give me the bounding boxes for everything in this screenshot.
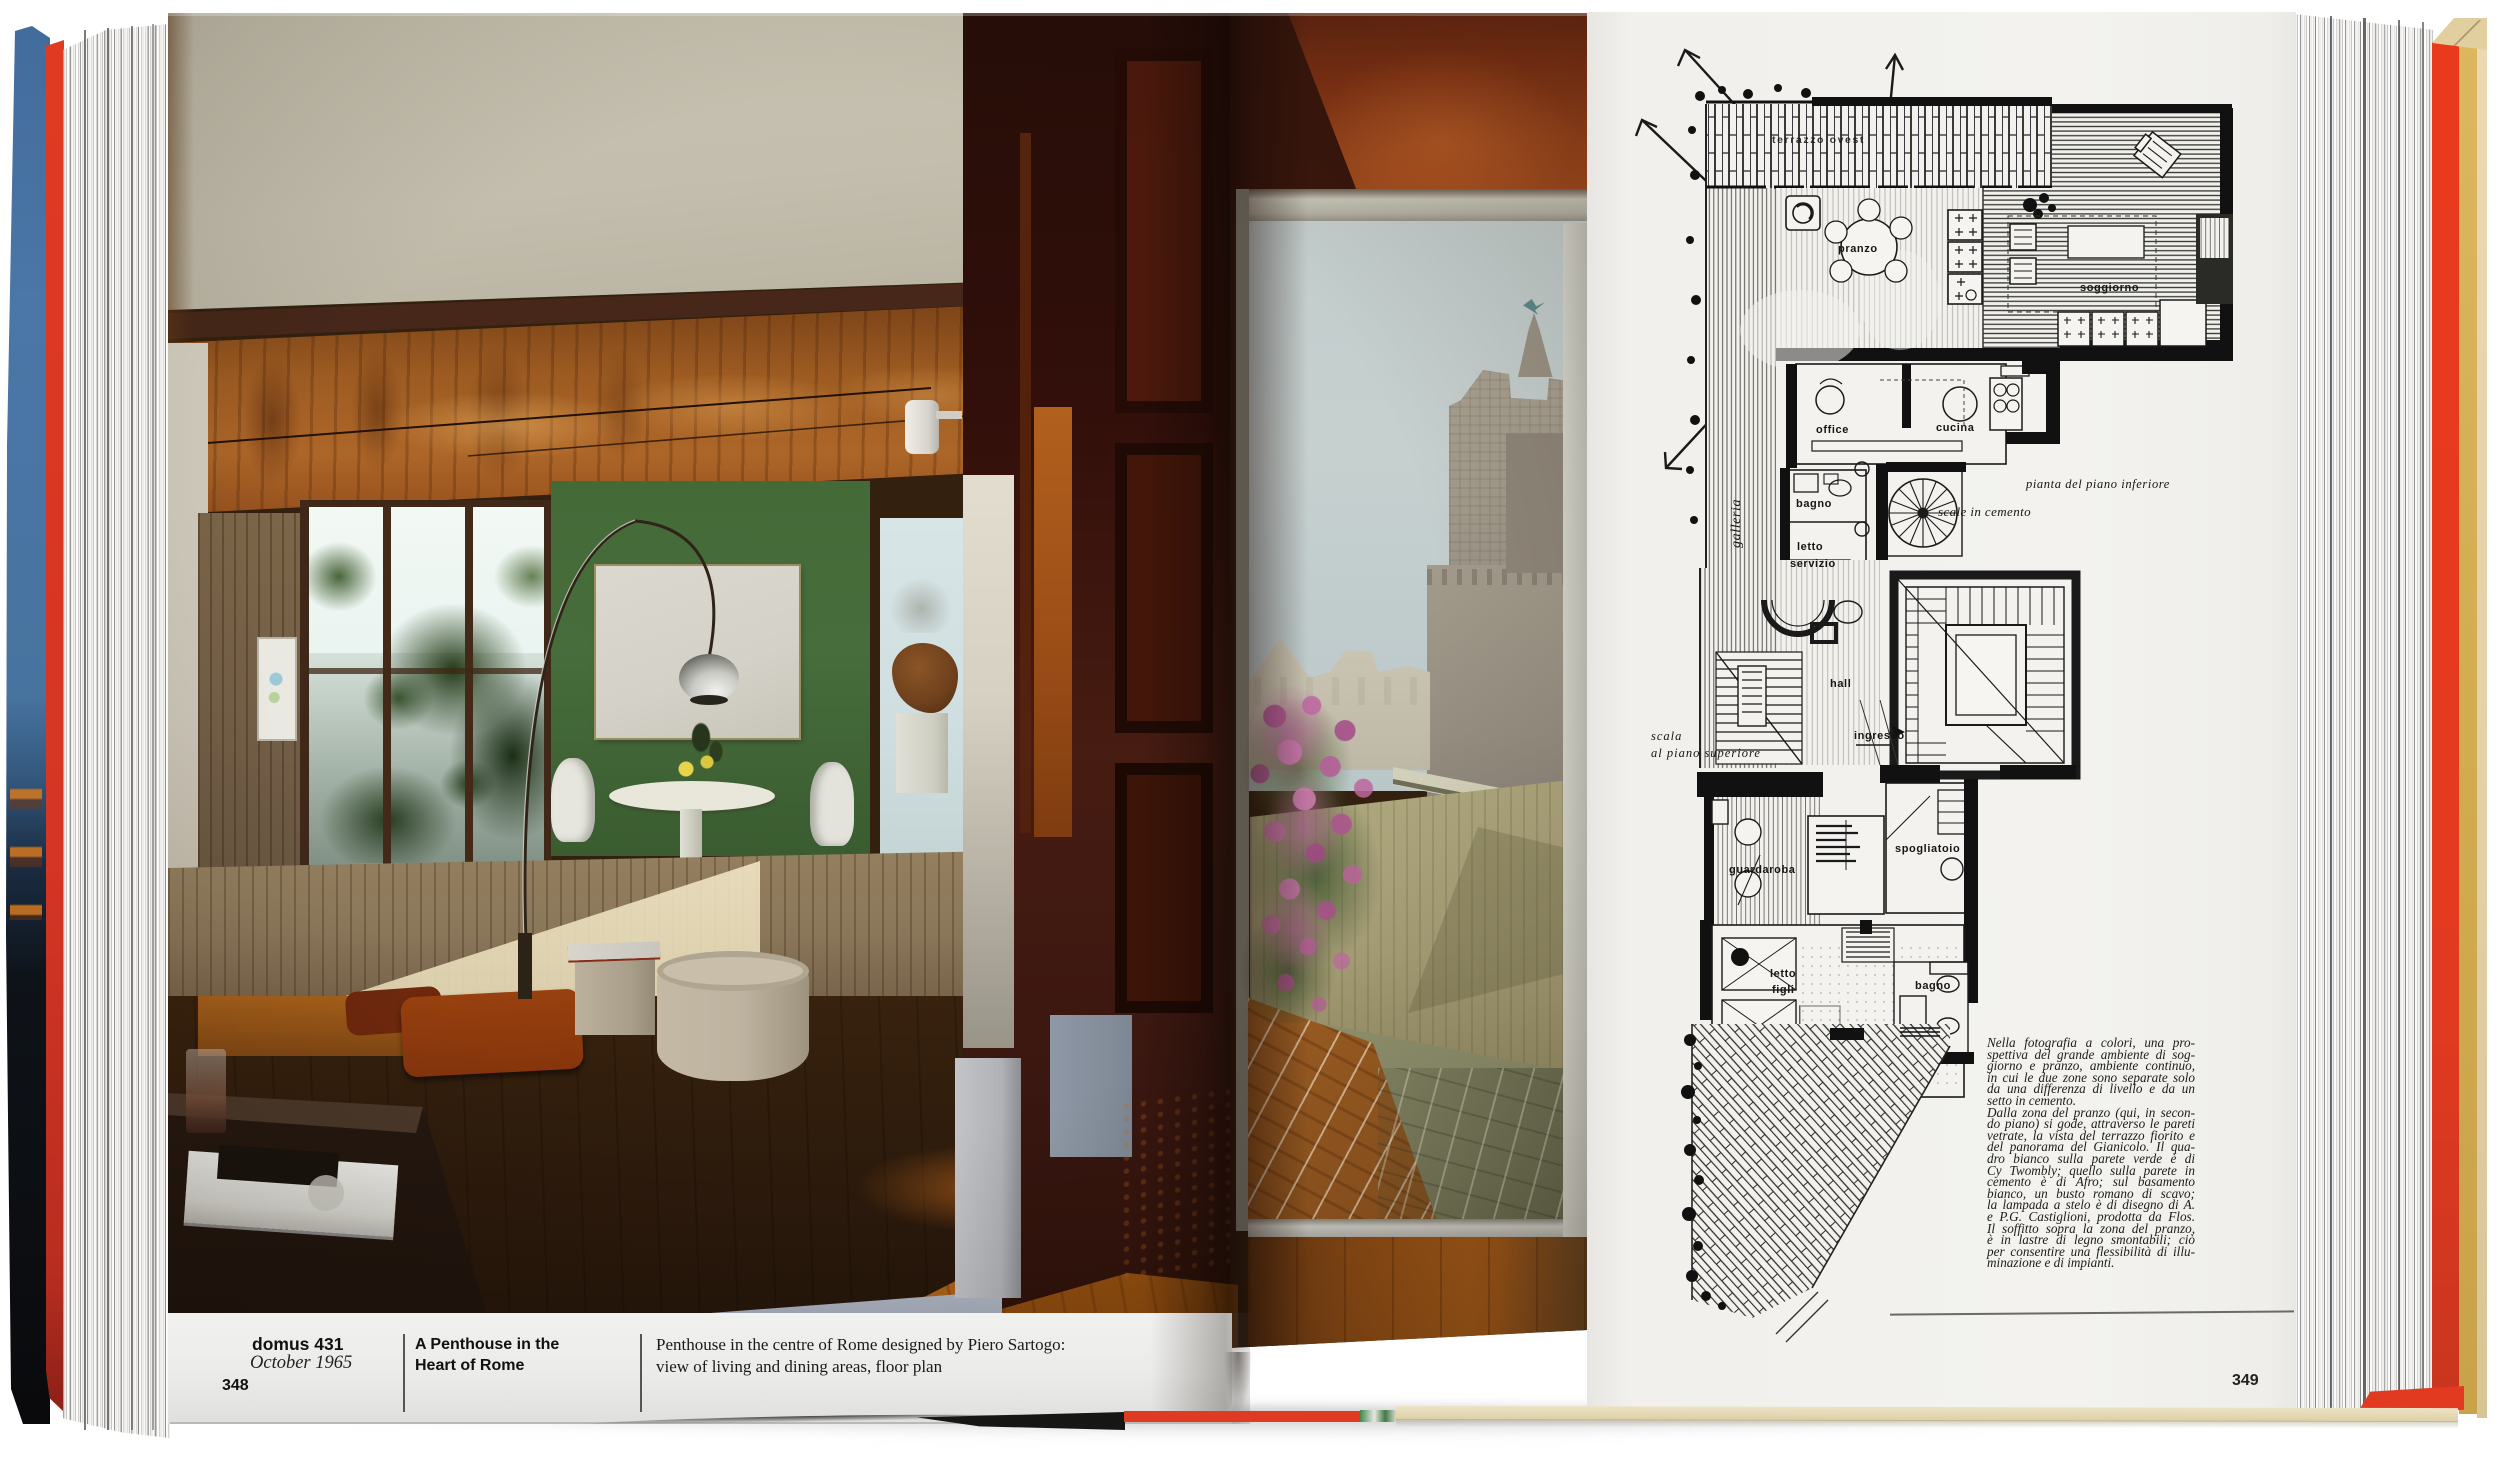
svg-text:al piano superiore: al piano superiore — [1651, 746, 1761, 760]
svg-text:hall: hall — [1830, 678, 1851, 690]
svg-text:soggiorno: soggiorno — [2080, 282, 2139, 294]
svg-text:bagno: bagno — [1915, 980, 1951, 992]
svg-text:pianta del piano inferiore: pianta del piano inferiore — [2025, 477, 2170, 491]
svg-text:terrazzo ovest: terrazzo ovest — [1772, 134, 1865, 146]
svg-text:cucina: cucina — [1936, 422, 1975, 434]
svg-text:servizio: servizio — [1790, 558, 1836, 570]
svg-text:spogliatoio: spogliatoio — [1895, 843, 1960, 855]
svg-text:letto: letto — [1770, 968, 1796, 980]
svg-text:pranzo: pranzo — [1838, 243, 1878, 255]
svg-text:guardaroba: guardaroba — [1729, 864, 1796, 876]
svg-text:galleria: galleria — [1729, 499, 1744, 548]
svg-text:letto: letto — [1797, 541, 1823, 553]
svg-text:office: office — [1816, 424, 1849, 436]
svg-text:ingresso: ingresso — [1854, 730, 1905, 742]
svg-text:scala: scala — [1651, 729, 1682, 743]
svg-text:scale in cemento: scale in cemento — [1938, 504, 2031, 519]
svg-text:figli: figli — [1772, 984, 1795, 996]
svg-text:bagno: bagno — [1796, 498, 1832, 510]
